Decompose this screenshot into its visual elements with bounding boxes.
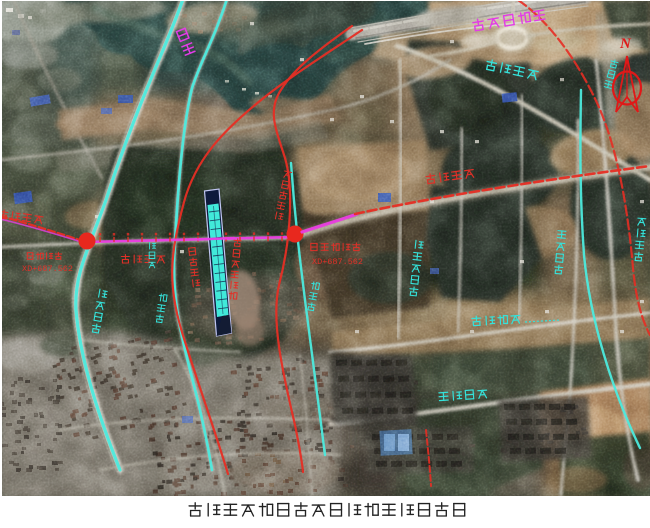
svg-text:XD+687.562: XD+687.562 xyxy=(312,257,363,267)
svg-text:N: N xyxy=(619,36,632,52)
svg-text:XD+687.562: XD+687.562 xyxy=(22,264,73,274)
